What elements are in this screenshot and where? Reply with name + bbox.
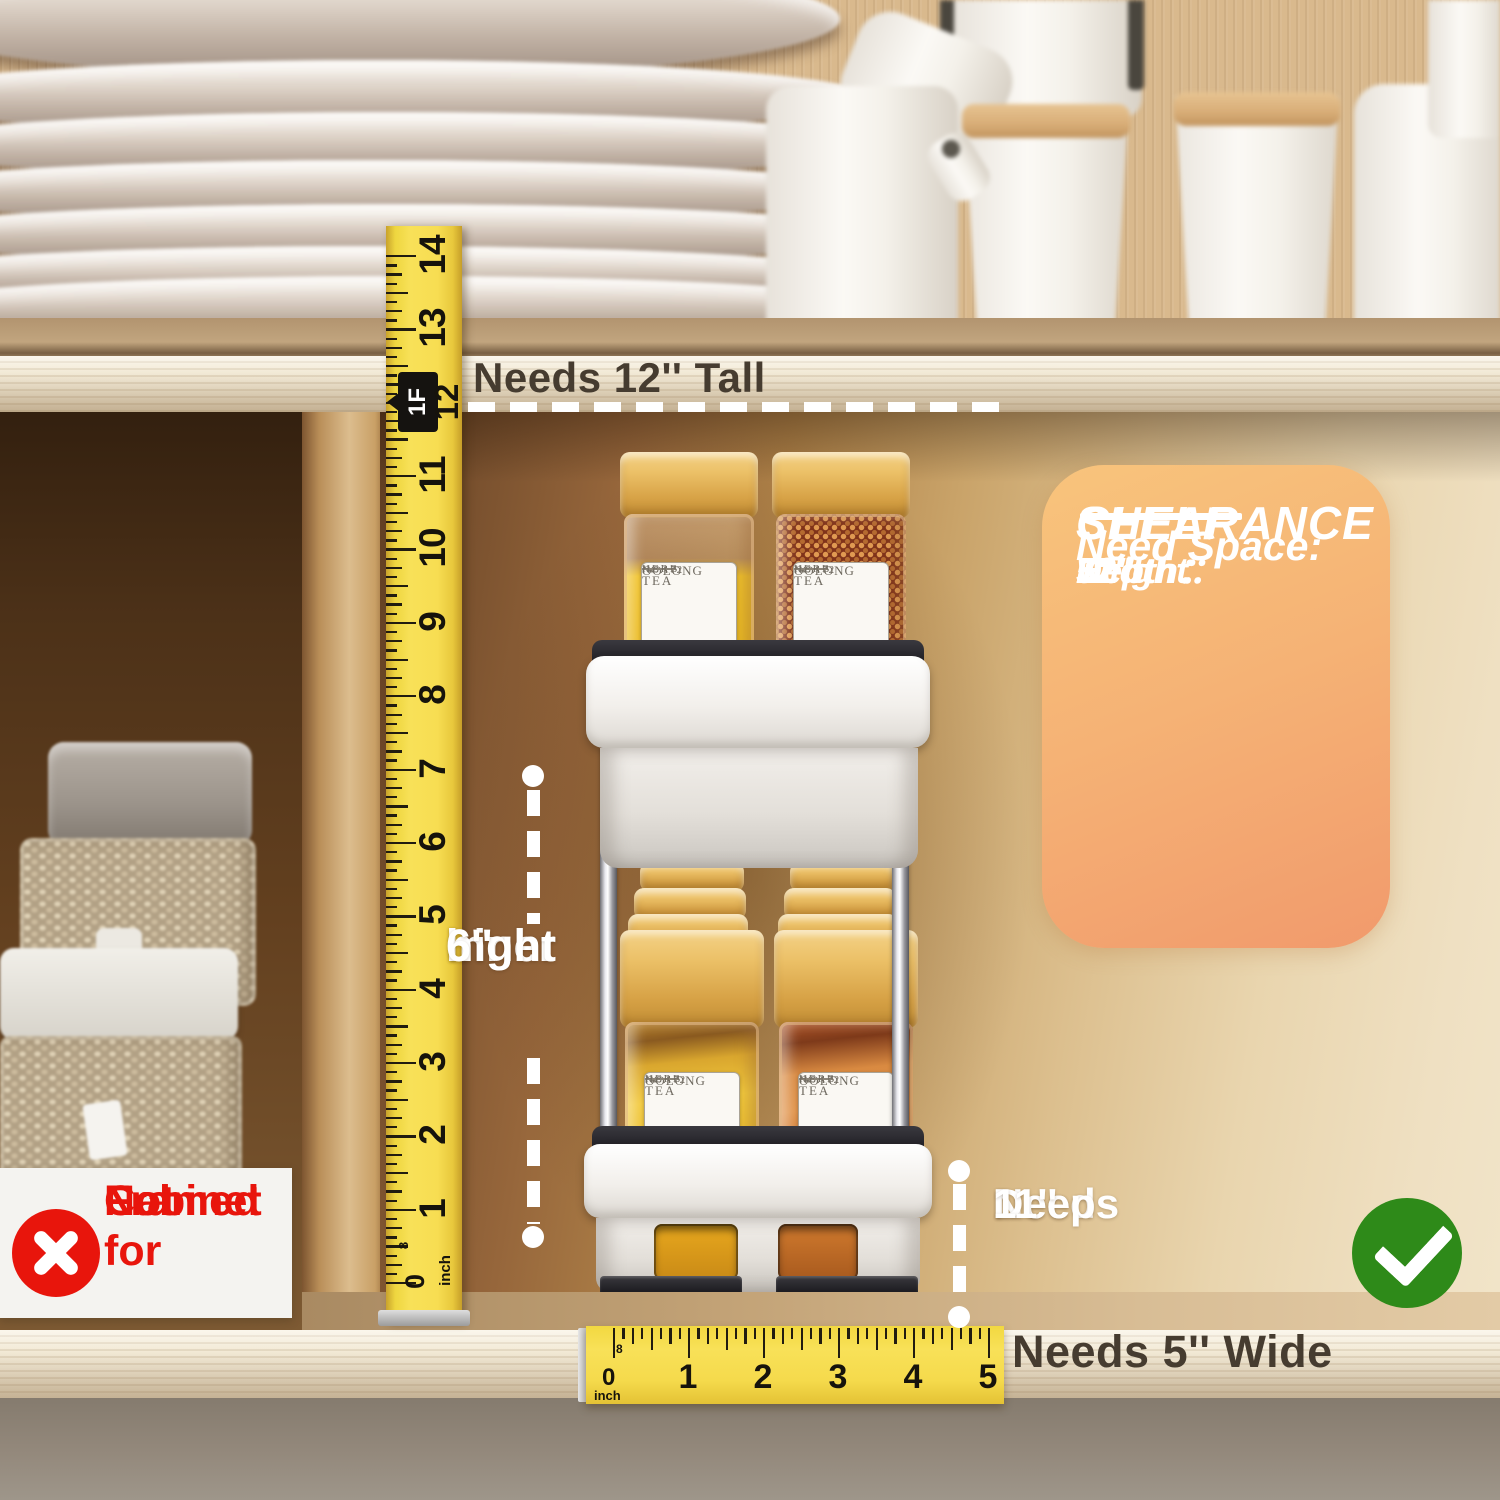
measuring-tape-vertical: 12345678910111314 1F 12 8 0 inch <box>386 226 462 1322</box>
dishware-shelf <box>740 0 1500 358</box>
ruler-unit-label: inch <box>594 1388 621 1403</box>
dash-endpoint <box>522 1226 544 1248</box>
teapot <box>1162 96 1352 356</box>
tape-number: 1 <box>410 1186 456 1232</box>
tape-zero-label: 0 <box>400 1274 431 1289</box>
bamboo-lid <box>620 452 758 518</box>
jar-sticker <box>82 1100 127 1161</box>
dashed-line-height <box>468 402 1008 412</box>
tape-number: 4 <box>410 966 456 1012</box>
floor <box>0 1398 1500 1500</box>
ruler-numbers: 12345 <box>586 1326 1004 1404</box>
dashed-line-inner-bottom <box>527 1058 540 1224</box>
bamboo-lid <box>772 452 910 518</box>
tape-number: 2 <box>410 1112 456 1158</box>
spec-row-width: Width：5'' <box>1076 545 1113 596</box>
spout-opening <box>942 140 960 158</box>
label-herb: HERB <box>794 563 831 575</box>
ruler-number: 5 <box>966 1358 1010 1397</box>
label-herb: HERB <box>642 563 679 575</box>
cabinet-divider <box>302 412 388 1332</box>
jar-pump-lid <box>48 742 252 846</box>
tape-unit-label: inch <box>437 1255 454 1286</box>
basket-window-orange <box>778 1224 858 1280</box>
ruler-number: 1 <box>666 1358 710 1397</box>
not-for-framed-cabinet-sign: Not for Framed Cabinet <box>0 1168 292 1318</box>
bottom-basket-rim <box>584 1144 932 1218</box>
tape-number: 9 <box>410 599 456 645</box>
tape-number: 8 <box>410 672 456 718</box>
spec-label: Width： <box>1076 545 1234 596</box>
dashed-line-inner-top <box>527 790 540 924</box>
tape-number: 11 <box>410 452 456 498</box>
ruler-number: 2 <box>741 1358 785 1397</box>
sign-line: Cabinet <box>104 1176 262 1226</box>
tape-number: 3 <box>410 1039 456 1085</box>
tape-eighth-label: 8 <box>396 1242 411 1249</box>
tape-end-clip <box>378 1310 470 1326</box>
spice-jar: ❧❧ NO.172 TEA OOLONG HERB <box>772 452 910 662</box>
label-herb: HERB <box>645 1073 682 1085</box>
top-basket-rim <box>586 656 930 748</box>
dashed-line-deep <box>953 1184 966 1306</box>
inner-height-line: 6'' <box>446 920 522 971</box>
dash-endpoint <box>522 765 544 787</box>
ruler-eighth-label: 8 <box>616 1342 623 1356</box>
needs-deep-line: 11'' <box>993 1180 1057 1228</box>
needs-wide-label: Needs 5'' Wide <box>1012 1326 1333 1378</box>
ruler-horizontal: 12345 8 0 inch <box>586 1326 1004 1404</box>
top-basket-body <box>600 748 918 868</box>
needs-tall-label: Needs 12'' Tall <box>473 354 766 402</box>
tape-number: 6 <box>410 819 456 865</box>
ruler-number: 3 <box>816 1358 860 1397</box>
card-underline <box>1080 513 1242 520</box>
tape-number: 7 <box>410 746 456 792</box>
canister-clip <box>1128 0 1144 90</box>
dash-endpoint <box>948 1160 970 1182</box>
cashew-jars <box>0 700 300 1220</box>
teapot-lid <box>1174 92 1340 126</box>
tape-number: 13 <box>410 305 456 351</box>
spice-jar: ❧❧ NO.172 TEA OOLONG HERB <box>620 452 758 662</box>
white-cylinder <box>766 86 958 354</box>
tape-number: 14 <box>410 232 456 278</box>
shelf-clearance-card: SHELF CLEARANCE Need Space: Height：12'' … <box>1042 465 1390 948</box>
x-mark-icon <box>12 1209 100 1297</box>
basket-window-yellow <box>654 1224 738 1280</box>
dash-endpoint <box>948 1306 970 1328</box>
product-photo-spice-rack-clearance: ❧❧ NO.172 TEA OOLONG HERB ❧❧ NO.172 TEA … <box>0 0 1500 1500</box>
bamboo-lid <box>620 930 764 1028</box>
jar-lid <box>0 948 238 1040</box>
foot-marker-inches: 12 <box>425 387 469 417</box>
check-mark-icon <box>1352 1198 1462 1308</box>
label-herb: HERB <box>799 1073 836 1085</box>
canister <box>1428 0 1500 138</box>
teapot-lid <box>962 104 1130 138</box>
ruler-number: 4 <box>891 1358 935 1397</box>
tape-number: 10 <box>410 525 456 571</box>
